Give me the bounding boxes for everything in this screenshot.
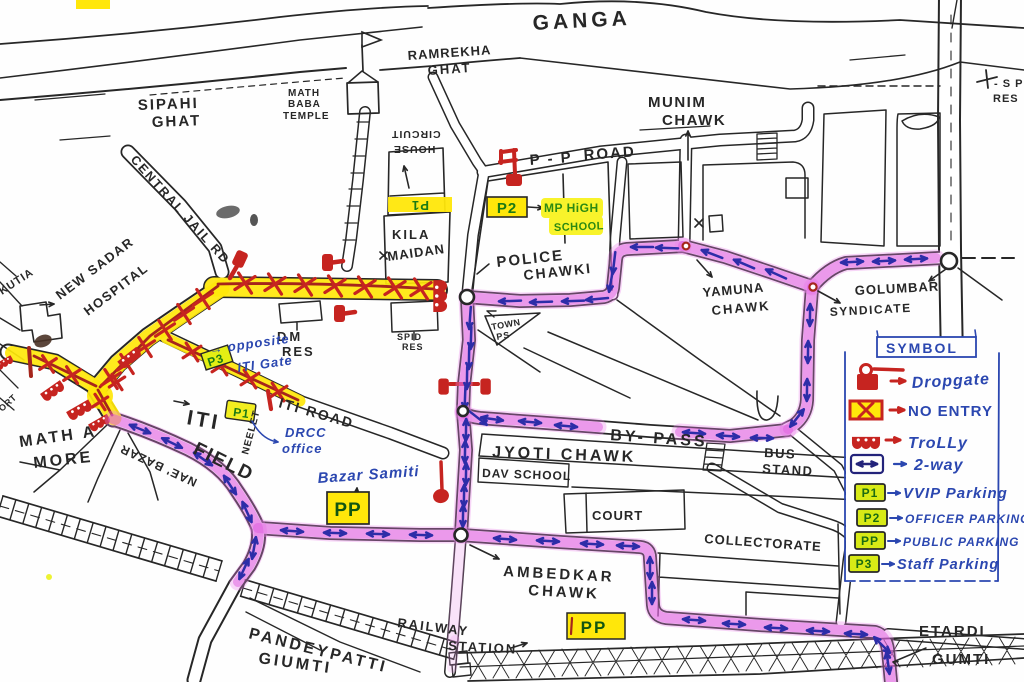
svg-text:DRCC: DRCC — [285, 425, 327, 440]
svg-text:PP: PP — [581, 618, 608, 637]
svg-text:MATH: MATH — [288, 88, 320, 99]
svg-text:MUNIM: MUNIM — [648, 94, 706, 111]
svg-text:MP HiGH: MP HiGH — [544, 201, 599, 215]
svg-text:ETARDI: ETARDI — [919, 623, 986, 640]
svg-text:GHAT: GHAT — [427, 60, 472, 78]
svg-text:P2: P2 — [864, 511, 881, 525]
svg-text:SIPAHI: SIPAHI — [138, 95, 199, 114]
svg-text:SCHOOL: SCHOOL — [554, 220, 604, 234]
svg-text:OFFICER PARKING: OFFICER PARKING — [905, 512, 1024, 526]
svg-text:SPID: SPID — [397, 332, 422, 342]
svg-text:CIRCUIT: CIRCUIT — [391, 128, 441, 140]
svg-text:TEMPLE: TEMPLE — [283, 111, 330, 122]
svg-text:P3: P3 — [856, 557, 873, 571]
svg-text:RES: RES — [402, 342, 424, 352]
svg-text:PP: PP — [861, 534, 879, 548]
svg-text:RES: RES — [993, 93, 1019, 105]
svg-text:COURT: COURT — [592, 508, 643, 523]
svg-text:HOUSE: HOUSE — [393, 143, 435, 155]
svg-text:TroLLy: TroLLy — [908, 435, 968, 452]
svg-text:STAND: STAND — [762, 461, 814, 479]
svg-text:NO ENTRY: NO ENTRY — [908, 403, 993, 420]
svg-text:KILA: KILA — [392, 227, 430, 242]
svg-text:P - P: P - P — [529, 149, 573, 169]
svg-text:GHAT: GHAT — [152, 112, 202, 131]
svg-text:- S P: - S P — [994, 78, 1023, 90]
svg-text:VVIP Parking: VVIP Parking — [903, 485, 1008, 502]
svg-text:BABA: BABA — [288, 99, 321, 110]
svg-text:GUMTI: GUMTI — [932, 651, 990, 668]
svg-text:ROAD: ROAD — [583, 143, 636, 164]
svg-text:2-way: 2-way — [913, 457, 964, 474]
svg-text:P1: P1 — [411, 198, 429, 213]
svg-text:office: office — [282, 441, 322, 456]
svg-text:BUS: BUS — [764, 445, 797, 462]
svg-text:PP: PP — [334, 500, 361, 521]
svg-text:CHAWK: CHAWK — [662, 112, 726, 129]
svg-text:SYMBOL: SYMBOL — [886, 340, 958, 356]
svg-text:P1: P1 — [232, 405, 250, 421]
svg-text:Staff Parking: Staff Parking — [897, 557, 999, 573]
svg-text:P1: P1 — [862, 486, 879, 500]
svg-text:PUBLIC PARKING: PUBLIC PARKING — [903, 535, 1019, 549]
svg-text:P2: P2 — [497, 200, 517, 217]
